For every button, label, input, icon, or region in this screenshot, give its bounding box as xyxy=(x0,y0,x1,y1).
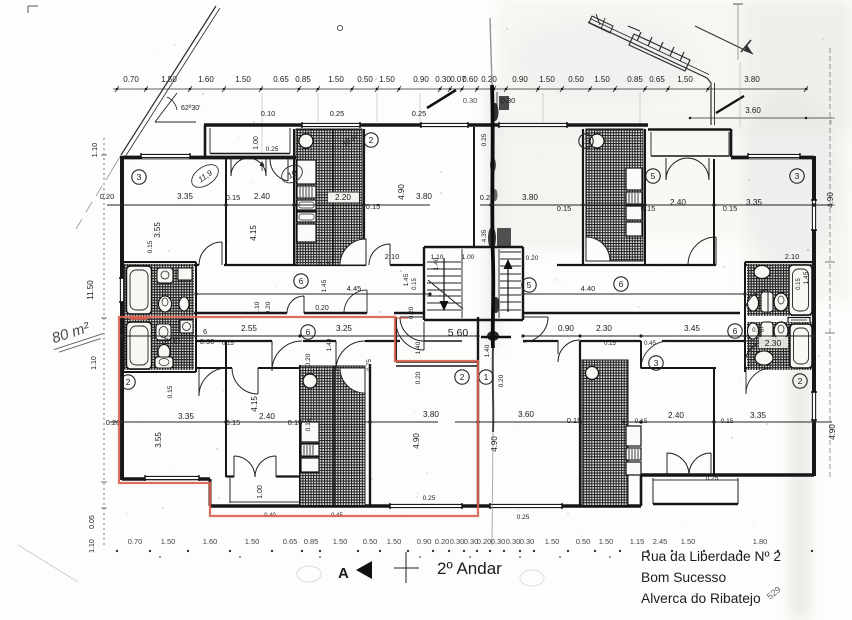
svg-text:1.50: 1.50 xyxy=(333,537,348,546)
svg-text:1.10: 1.10 xyxy=(90,143,99,158)
svg-text:0.20: 0.20 xyxy=(435,537,450,546)
svg-text:0.90: 0.90 xyxy=(417,537,432,546)
svg-text:0.25: 0.25 xyxy=(481,133,488,146)
svg-text:0.70: 0.70 xyxy=(123,75,139,84)
svg-text:2.30: 2.30 xyxy=(164,336,181,346)
svg-text:3.45: 3.45 xyxy=(684,324,700,333)
svg-text:0.85: 0.85 xyxy=(304,537,319,546)
svg-text:1.80: 1.80 xyxy=(753,537,768,546)
svg-text:1.15: 1.15 xyxy=(630,537,645,546)
svg-text:3.35: 3.35 xyxy=(750,411,766,420)
svg-text:1.50: 1.50 xyxy=(545,537,560,546)
svg-text:0.30: 0.30 xyxy=(463,96,478,105)
svg-text:1.00: 1.00 xyxy=(253,136,260,150)
svg-text:2.55: 2.55 xyxy=(241,324,257,333)
svg-text:1.40: 1.40 xyxy=(415,341,422,354)
svg-text:1.50: 1.50 xyxy=(539,75,555,84)
svg-text:2.10: 2.10 xyxy=(385,252,399,261)
svg-text:0.20: 0.20 xyxy=(305,353,312,366)
svg-text:0.20: 0.20 xyxy=(480,193,494,202)
svg-text:1.50: 1.50 xyxy=(235,75,251,84)
svg-text:1.50: 1.50 xyxy=(379,75,395,84)
svg-text:0.15: 0.15 xyxy=(366,202,380,211)
svg-text:0.20: 0.20 xyxy=(415,371,422,384)
svg-text:1.50: 1.50 xyxy=(245,537,260,546)
svg-text:1.45: 1.45 xyxy=(803,271,810,284)
svg-text:1.50: 1.50 xyxy=(681,537,696,546)
svg-text:1.50: 1.50 xyxy=(387,537,402,546)
svg-text:2.20: 2.20 xyxy=(335,193,351,202)
svg-text:0.25: 0.25 xyxy=(706,475,719,482)
svg-text:1: 1 xyxy=(584,136,589,146)
svg-text:4.15: 4.15 xyxy=(249,225,258,241)
svg-text:0.15: 0.15 xyxy=(167,385,174,398)
svg-text:4.40: 4.40 xyxy=(581,284,595,293)
svg-text:0.20: 0.20 xyxy=(481,75,497,84)
svg-text:1.10: 1.10 xyxy=(431,254,444,261)
svg-text:0.70: 0.70 xyxy=(128,537,143,546)
svg-text:11.50: 11.50 xyxy=(86,280,95,300)
svg-text:0.65: 0.65 xyxy=(649,75,665,84)
svg-text:1.00: 1.00 xyxy=(462,254,475,261)
svg-text:2.45: 2.45 xyxy=(653,537,668,546)
svg-text:0.30: 0.30 xyxy=(450,537,465,546)
svg-text:6: 6 xyxy=(203,327,207,336)
svg-text:4.45: 4.45 xyxy=(347,284,361,293)
svg-text:0.90: 0.90 xyxy=(558,324,574,333)
svg-text:3.60: 3.60 xyxy=(745,106,761,115)
svg-text:0.15: 0.15 xyxy=(412,278,418,290)
svg-text:Bom Sucesso: Bom Sucesso xyxy=(641,570,726,585)
svg-text:6: 6 xyxy=(299,276,304,286)
svg-text:0.90: 0.90 xyxy=(413,75,429,84)
svg-text:1.40: 1.40 xyxy=(326,338,333,351)
svg-text:2.40: 2.40 xyxy=(668,411,684,420)
svg-text:0.15: 0.15 xyxy=(222,341,234,347)
svg-text:2.30: 2.30 xyxy=(596,324,612,333)
svg-text:4.90: 4.90 xyxy=(397,184,406,200)
svg-text:0.50: 0.50 xyxy=(568,75,584,84)
svg-text:0.15: 0.15 xyxy=(721,418,734,425)
svg-text:0.20: 0.20 xyxy=(100,192,114,201)
svg-text:A: A xyxy=(338,565,349,582)
svg-text:62º30': 62º30' xyxy=(181,105,200,112)
svg-text:3.35: 3.35 xyxy=(746,198,762,207)
svg-text:0.90: 0.90 xyxy=(512,75,528,84)
svg-text:1.50: 1.50 xyxy=(328,75,344,84)
svg-text:0.15: 0.15 xyxy=(318,262,330,268)
svg-text:3: 3 xyxy=(654,358,659,368)
svg-text:0.05: 0.05 xyxy=(89,515,96,529)
svg-text:1.45: 1.45 xyxy=(321,279,328,292)
svg-text:0.15: 0.15 xyxy=(147,240,154,253)
svg-text:0.20: 0.20 xyxy=(526,255,539,262)
svg-text:2: 2 xyxy=(798,376,803,386)
svg-text:4.90: 4.90 xyxy=(828,424,837,440)
svg-text:5: 5 xyxy=(651,171,656,181)
svg-text:0.15: 0.15 xyxy=(288,418,302,427)
svg-text:1.00: 1.00 xyxy=(257,485,264,499)
svg-text:0.45: 0.45 xyxy=(644,341,656,347)
svg-text:0.30: 0.30 xyxy=(435,75,451,84)
svg-text:0.30: 0.30 xyxy=(491,537,506,546)
svg-text:Alverca do Ribatejo: Alverca do Ribatejo xyxy=(641,591,761,606)
svg-text:0.75: 0.75 xyxy=(367,359,373,371)
svg-text:2.40: 2.40 xyxy=(254,192,270,201)
svg-text:0.60: 0.60 xyxy=(462,75,478,84)
svg-text:0.20: 0.20 xyxy=(477,537,492,546)
svg-text:1.45: 1.45 xyxy=(403,273,410,286)
svg-text:2: 2 xyxy=(460,372,465,382)
svg-text:4.90: 4.90 xyxy=(490,436,499,452)
svg-text:3.55: 3.55 xyxy=(154,432,163,448)
svg-text:0.65: 0.65 xyxy=(273,75,289,84)
svg-text:2º Andar: 2º Andar xyxy=(437,559,502,578)
svg-text:4.90: 4.90 xyxy=(826,192,835,208)
svg-text:0.15: 0.15 xyxy=(305,418,312,431)
svg-text:1.50: 1.50 xyxy=(599,537,614,546)
svg-text:0.90: 0.90 xyxy=(200,337,214,346)
svg-text:1.40: 1.40 xyxy=(484,344,491,357)
svg-text:1.10: 1.10 xyxy=(254,301,261,314)
svg-text:0.15: 0.15 xyxy=(604,341,616,347)
svg-text:0.50: 0.50 xyxy=(363,537,378,546)
svg-text:4.90: 4.90 xyxy=(412,433,421,449)
svg-text:3.80: 3.80 xyxy=(416,192,432,201)
svg-text:2: 2 xyxy=(126,377,131,387)
svg-text:0.30: 0.30 xyxy=(506,537,521,546)
svg-text:1.10: 1.10 xyxy=(91,356,98,370)
svg-text:4.35: 4.35 xyxy=(481,229,488,242)
svg-text:1.60: 1.60 xyxy=(198,75,214,84)
svg-text:0.15: 0.15 xyxy=(226,418,240,427)
svg-text:0.50: 0.50 xyxy=(357,75,373,84)
svg-text:0.30: 0.30 xyxy=(520,537,535,546)
svg-text:2.40: 2.40 xyxy=(670,198,686,207)
svg-text:2.30: 2.30 xyxy=(765,338,782,348)
svg-text:3: 3 xyxy=(137,172,142,182)
svg-text:6: 6 xyxy=(306,327,311,337)
svg-text:2.40: 2.40 xyxy=(259,412,275,421)
svg-text:5 60: 5 60 xyxy=(448,327,469,339)
svg-text:1.60: 1.60 xyxy=(203,537,218,546)
svg-text:0.25: 0.25 xyxy=(266,146,279,153)
svg-text:0.15: 0.15 xyxy=(723,204,737,213)
svg-text:0.85: 0.85 xyxy=(627,75,643,84)
svg-text:1: 1 xyxy=(484,372,489,382)
svg-text:1.10: 1.10 xyxy=(89,539,96,553)
svg-text:3.35: 3.35 xyxy=(178,412,194,421)
svg-text:Rua da Liberdade Nº 2: Rua da Liberdade Nº 2 xyxy=(641,549,781,564)
svg-text:1.50: 1.50 xyxy=(161,537,176,546)
svg-text:0.85: 0.85 xyxy=(295,75,311,84)
svg-text:3.25: 3.25 xyxy=(336,324,352,333)
svg-text:0.10: 0.10 xyxy=(261,109,275,118)
svg-text:3: 3 xyxy=(795,171,800,181)
svg-text:3.80: 3.80 xyxy=(423,410,439,419)
svg-text:0.15: 0.15 xyxy=(796,278,802,290)
svg-text:0.65: 0.65 xyxy=(283,537,298,546)
svg-text:0.15: 0.15 xyxy=(567,416,581,425)
svg-text:3.35: 3.35 xyxy=(177,192,193,201)
svg-text:3.80: 3.80 xyxy=(744,75,760,84)
svg-text:0.25: 0.25 xyxy=(330,109,344,118)
svg-text:0.25: 0.25 xyxy=(423,495,436,502)
svg-text:2: 2 xyxy=(369,135,374,145)
svg-text:5: 5 xyxy=(527,280,532,290)
svg-text:0.25: 0.25 xyxy=(412,109,426,118)
svg-text:0.15: 0.15 xyxy=(226,193,240,202)
svg-text:0.25: 0.25 xyxy=(517,514,530,521)
svg-text:6: 6 xyxy=(733,326,738,336)
svg-text:3.55: 3.55 xyxy=(153,222,162,238)
svg-text:0.15: 0.15 xyxy=(752,328,764,334)
svg-text:6: 6 xyxy=(619,279,624,289)
svg-text:1.50: 1.50 xyxy=(677,75,693,84)
svg-text:3.80: 3.80 xyxy=(522,193,538,202)
svg-text:2.10: 2.10 xyxy=(785,252,799,261)
svg-text:0.20: 0.20 xyxy=(408,306,415,319)
svg-text:0.20: 0.20 xyxy=(265,301,272,314)
svg-text:4.15: 4.15 xyxy=(250,396,259,412)
svg-text:0.20: 0.20 xyxy=(315,305,329,312)
svg-text:0.20: 0.20 xyxy=(498,374,505,387)
svg-text:0.15: 0.15 xyxy=(557,204,571,213)
svg-text:0.15: 0.15 xyxy=(641,204,655,213)
svg-text:0.15: 0.15 xyxy=(635,418,648,425)
svg-text:3.60: 3.60 xyxy=(518,410,534,419)
svg-text:0.50: 0.50 xyxy=(576,537,591,546)
svg-text:1.50: 1.50 xyxy=(594,75,610,84)
